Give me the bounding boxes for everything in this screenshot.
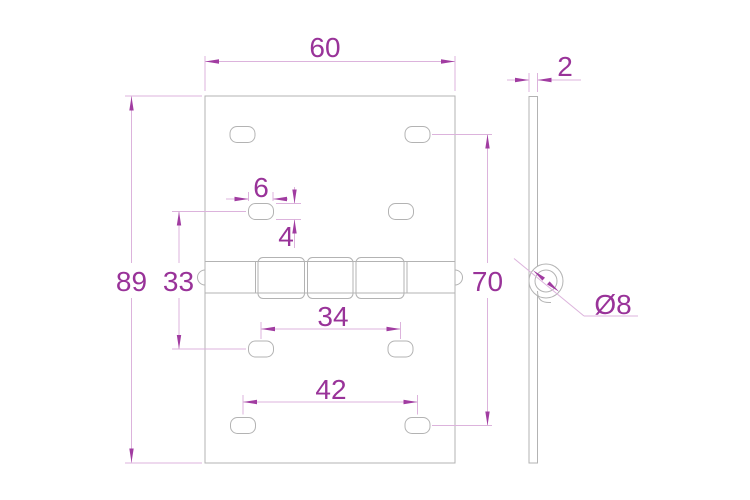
dim-label: 42 bbox=[315, 374, 346, 405]
knuckle-tab bbox=[308, 258, 354, 299]
dim-label: 34 bbox=[317, 301, 348, 332]
dim-label: 33 bbox=[163, 266, 194, 297]
arrowhead bbox=[235, 197, 249, 201]
arrowhead bbox=[485, 135, 489, 149]
arrowhead bbox=[177, 335, 181, 349]
arrowhead bbox=[177, 212, 181, 226]
arrowhead bbox=[387, 327, 401, 331]
dim-slot-width: 6 bbox=[226, 172, 288, 203]
dim-leaf-thickness: 2 bbox=[507, 51, 581, 92]
dim-plate-width: 60 bbox=[205, 32, 455, 91]
arrowhead bbox=[538, 78, 552, 82]
arrowhead bbox=[243, 400, 257, 404]
slot-hole bbox=[249, 341, 274, 357]
dim-slot-height: 4 bbox=[276, 187, 301, 252]
arrowhead bbox=[129, 97, 133, 111]
arrowhead bbox=[261, 327, 275, 331]
dim-outer-hole-span: 70 bbox=[432, 135, 503, 426]
dim-bottom-hole-spacing: 42 bbox=[243, 374, 418, 415]
dim-label: 2 bbox=[557, 51, 573, 82]
slot-hole bbox=[405, 127, 430, 143]
knuckle-barrel-circle bbox=[529, 264, 563, 298]
drawing-canvas: 60 89 33 70 2 bbox=[0, 0, 750, 500]
arrowhead bbox=[515, 78, 529, 82]
knuckle-end-cap-left bbox=[198, 270, 206, 285]
arrowhead bbox=[404, 400, 418, 404]
front-view bbox=[198, 96, 463, 463]
side-view bbox=[529, 97, 563, 464]
slot-hole bbox=[389, 204, 414, 220]
arrowhead bbox=[129, 449, 133, 463]
knuckle-tab bbox=[258, 258, 305, 299]
slot-hole bbox=[230, 127, 255, 143]
arrowhead bbox=[273, 197, 287, 201]
slot-hole bbox=[231, 418, 256, 434]
dim-label: 60 bbox=[309, 32, 340, 63]
arrowhead bbox=[485, 412, 489, 426]
slot-hole bbox=[405, 418, 430, 434]
knuckle-tab bbox=[356, 258, 404, 299]
arrowhead bbox=[292, 190, 296, 204]
dim-label: 89 bbox=[116, 266, 147, 297]
slot-hole bbox=[388, 341, 413, 357]
dim-label: Ø8 bbox=[594, 289, 631, 320]
hinge-drawing: 60 89 33 70 2 bbox=[0, 0, 750, 500]
dim-label: 6 bbox=[253, 172, 269, 203]
slot-hole bbox=[249, 204, 274, 220]
knuckle-end-cap-right bbox=[455, 270, 463, 285]
arrowhead bbox=[441, 59, 455, 63]
arrowhead bbox=[205, 59, 219, 63]
dim-label: 4 bbox=[278, 221, 294, 252]
dim-middle-hole-spacing: 34 bbox=[261, 301, 401, 339]
dim-label: 70 bbox=[472, 266, 503, 297]
dim-inner-hole-span: 33 bbox=[163, 212, 246, 350]
